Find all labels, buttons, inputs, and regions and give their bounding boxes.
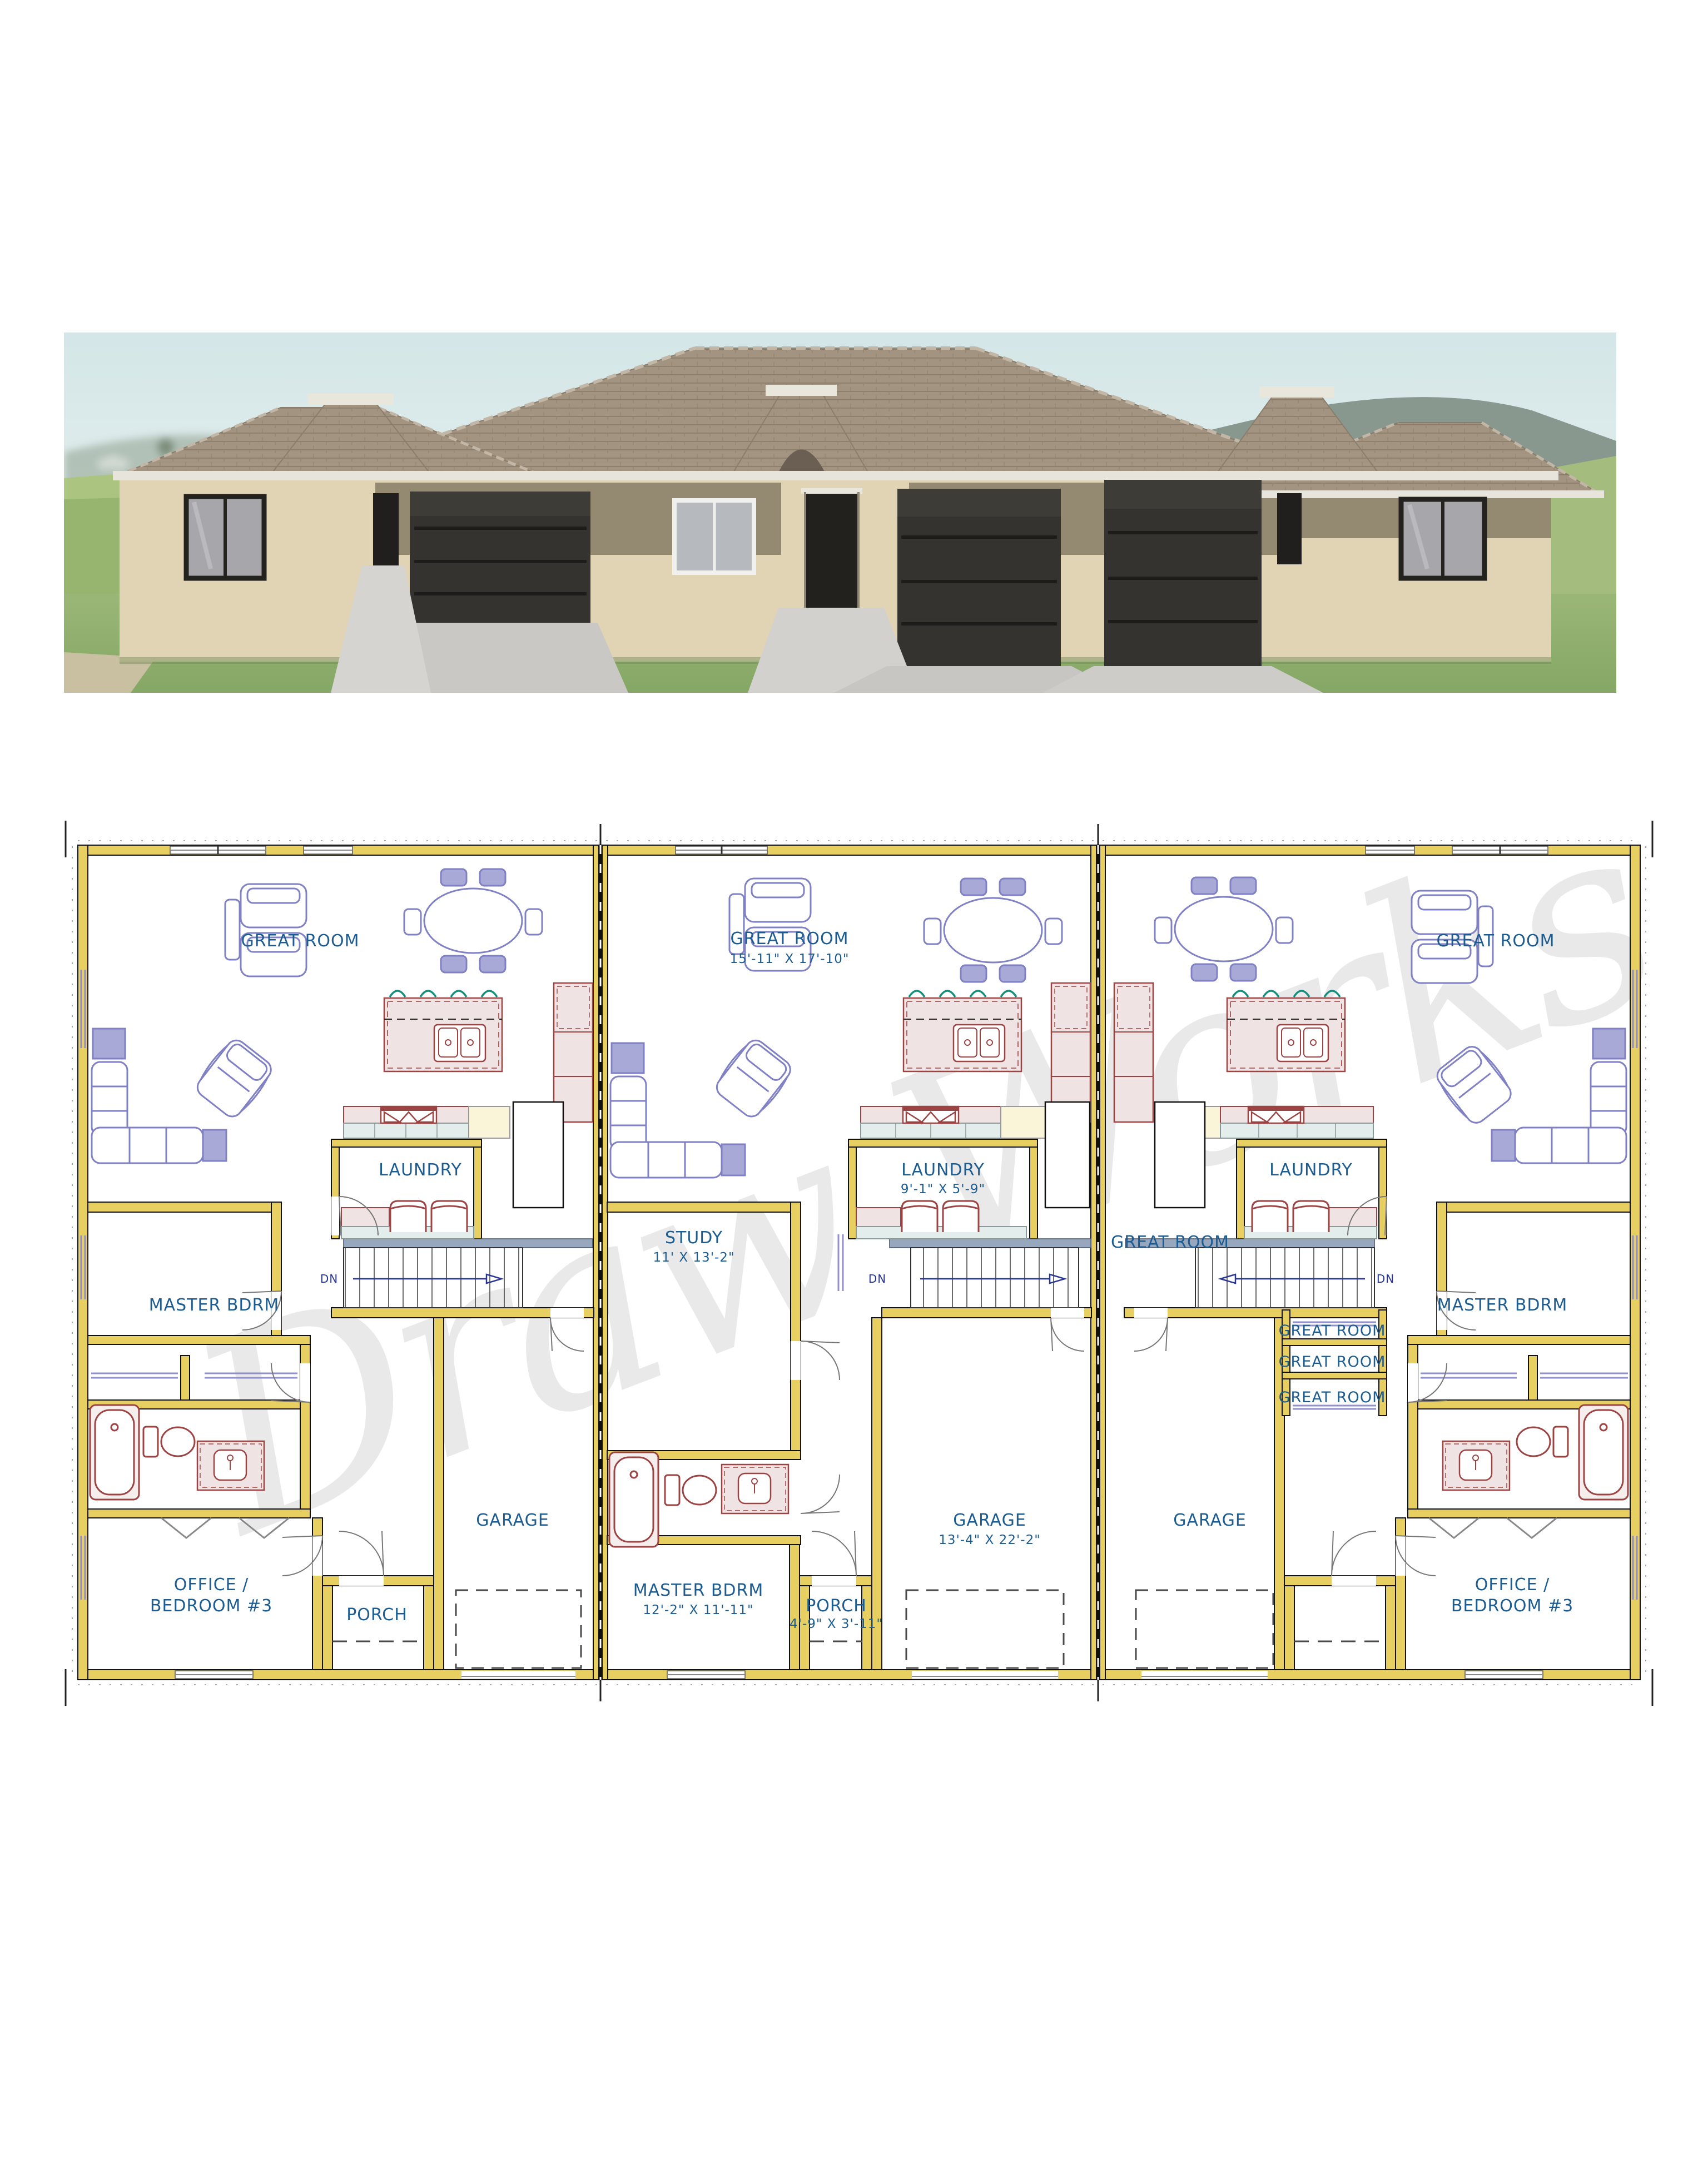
laundry-left: [341, 1201, 474, 1239]
label-great-room-middle-dim: 15'-11" X 17'-10": [730, 952, 850, 966]
walls: [78, 845, 1640, 1680]
label-master-middle-dim: 12'-2" X 11'-11": [643, 1603, 753, 1617]
kitchen-island-left: [384, 991, 502, 1071]
entry-arch-center: [801, 488, 862, 608]
floor-plan-svg: GREAT ROOM MASTER BDRM LAUNDRY GARAGE OF…: [56, 813, 1662, 1736]
label-porch-left: PORCH: [346, 1605, 408, 1625]
bathtub-icon: [609, 1452, 658, 1547]
floor-plan: GREAT ROOM MASTER BDRM LAUNDRY GARAGE OF…: [56, 813, 1662, 1736]
sofa-sectional-icon: [610, 1043, 745, 1178]
label-great-room-right-side: GREAT ROOM: [1111, 1233, 1229, 1252]
label-master-left: MASTER BDRM: [149, 1295, 280, 1315]
window-left: [186, 497, 264, 578]
label-master-right: MASTER BDRM: [1437, 1295, 1568, 1315]
label-dn-right: DN: [1377, 1272, 1394, 1285]
label-great-room-middle: GREAT ROOM: [730, 929, 848, 949]
label-office-right-1: OFFICE /: [1475, 1575, 1550, 1595]
sink-vanity-icon: [197, 1441, 264, 1490]
label-garage-right: GARAGE: [1173, 1511, 1247, 1530]
recliner-icon: [711, 1035, 796, 1122]
cabinetry: [341, 983, 1377, 1239]
sink-vanity-icon: [1443, 1441, 1510, 1490]
garage-door-right: [1104, 480, 1262, 666]
armchair-pair-icon: [225, 884, 306, 976]
label-laundry-left: LAUNDRY: [379, 1160, 462, 1180]
kitchen-island-middle: [903, 991, 1021, 1071]
tall-cabinets-right: [1114, 983, 1153, 1122]
stairs-middle-unit: [890, 1239, 1091, 1308]
mech-closet-middle: [1045, 1102, 1090, 1208]
label-office-left-1: OFFICE /: [174, 1575, 249, 1595]
label-dn-middle: DN: [868, 1272, 886, 1285]
bathtub-icon: [1579, 1405, 1628, 1500]
entry-door-left: [373, 493, 399, 565]
label-dn-left: DN: [320, 1272, 338, 1285]
kitchen-island-right: [1227, 991, 1345, 1071]
dining-set-icon: [924, 878, 1062, 982]
label-study: STUDY: [665, 1228, 723, 1248]
exterior-hatch: [72, 841, 1646, 1685]
label-closet-b: GREAT ROOM: [1279, 1353, 1386, 1371]
label-office-left-2: BEDROOM #3: [150, 1596, 272, 1616]
elevation-svg: [64, 332, 1616, 693]
drawing-sheet: Draw Works: [0, 0, 1683, 2184]
furniture: [92, 869, 1626, 1178]
range-counter-middle: [861, 1106, 1068, 1138]
dining-set-icon: [404, 869, 542, 972]
label-great-room-right: GREAT ROOM: [1436, 931, 1555, 951]
label-closet-a: GREAT ROOM: [1279, 1322, 1386, 1339]
mech-closet-left: [513, 1102, 563, 1208]
label-laundry-right: LAUNDRY: [1269, 1160, 1353, 1180]
toilet-icon: [143, 1427, 195, 1457]
laundry-right: [1244, 1201, 1377, 1239]
sink-vanity-icon: [722, 1465, 788, 1513]
label-garage-left: GARAGE: [476, 1511, 549, 1530]
window-center: [674, 500, 754, 573]
stairs-left-unit: [344, 1239, 593, 1308]
label-garage-middle: GARAGE: [953, 1511, 1026, 1530]
elevation-rendering: [64, 332, 1616, 693]
laundry-middle: [856, 1201, 1026, 1239]
dining-set-icon: [1155, 877, 1293, 981]
label-study-dim: 11' X 13'-2": [653, 1250, 734, 1265]
label-porch-middle: PORCH: [806, 1596, 867, 1616]
closet-shelves: [91, 1234, 1628, 1409]
label-laundry-middle-dim: 9'-1" X 5'-9": [901, 1182, 985, 1197]
label-porch-middle-dim: 4'-9" X 3'-11": [790, 1617, 883, 1631]
sofa-sectional-icon: [1492, 1029, 1626, 1163]
tall-cabinets-left: [554, 983, 593, 1122]
window-right: [1401, 499, 1485, 578]
label-office-right-2: BEDROOM #3: [1451, 1596, 1573, 1616]
garage-door-left: [410, 492, 590, 623]
bathtub-icon: [90, 1405, 139, 1500]
label-garage-middle-dim: 13'-4" X 22'-2": [939, 1533, 1041, 1547]
garage-door-middle: [897, 489, 1061, 666]
tall-cabinets-middle: [1051, 983, 1090, 1122]
mech-closet-right: [1155, 1102, 1205, 1208]
recliner-icon: [192, 1035, 277, 1122]
label-great-room-left: GREAT ROOM: [241, 931, 359, 951]
label-closet-c: GREAT ROOM: [1279, 1389, 1386, 1406]
label-master-middle: MASTER BDRM: [633, 1581, 764, 1600]
range-counter-left: [344, 1106, 510, 1138]
label-laundry-middle: LAUNDRY: [901, 1160, 985, 1180]
entry-door-right: [1277, 493, 1302, 564]
recliner-icon: [1432, 1041, 1517, 1128]
toilet-icon: [1517, 1427, 1568, 1457]
toilet-icon: [665, 1475, 716, 1505]
